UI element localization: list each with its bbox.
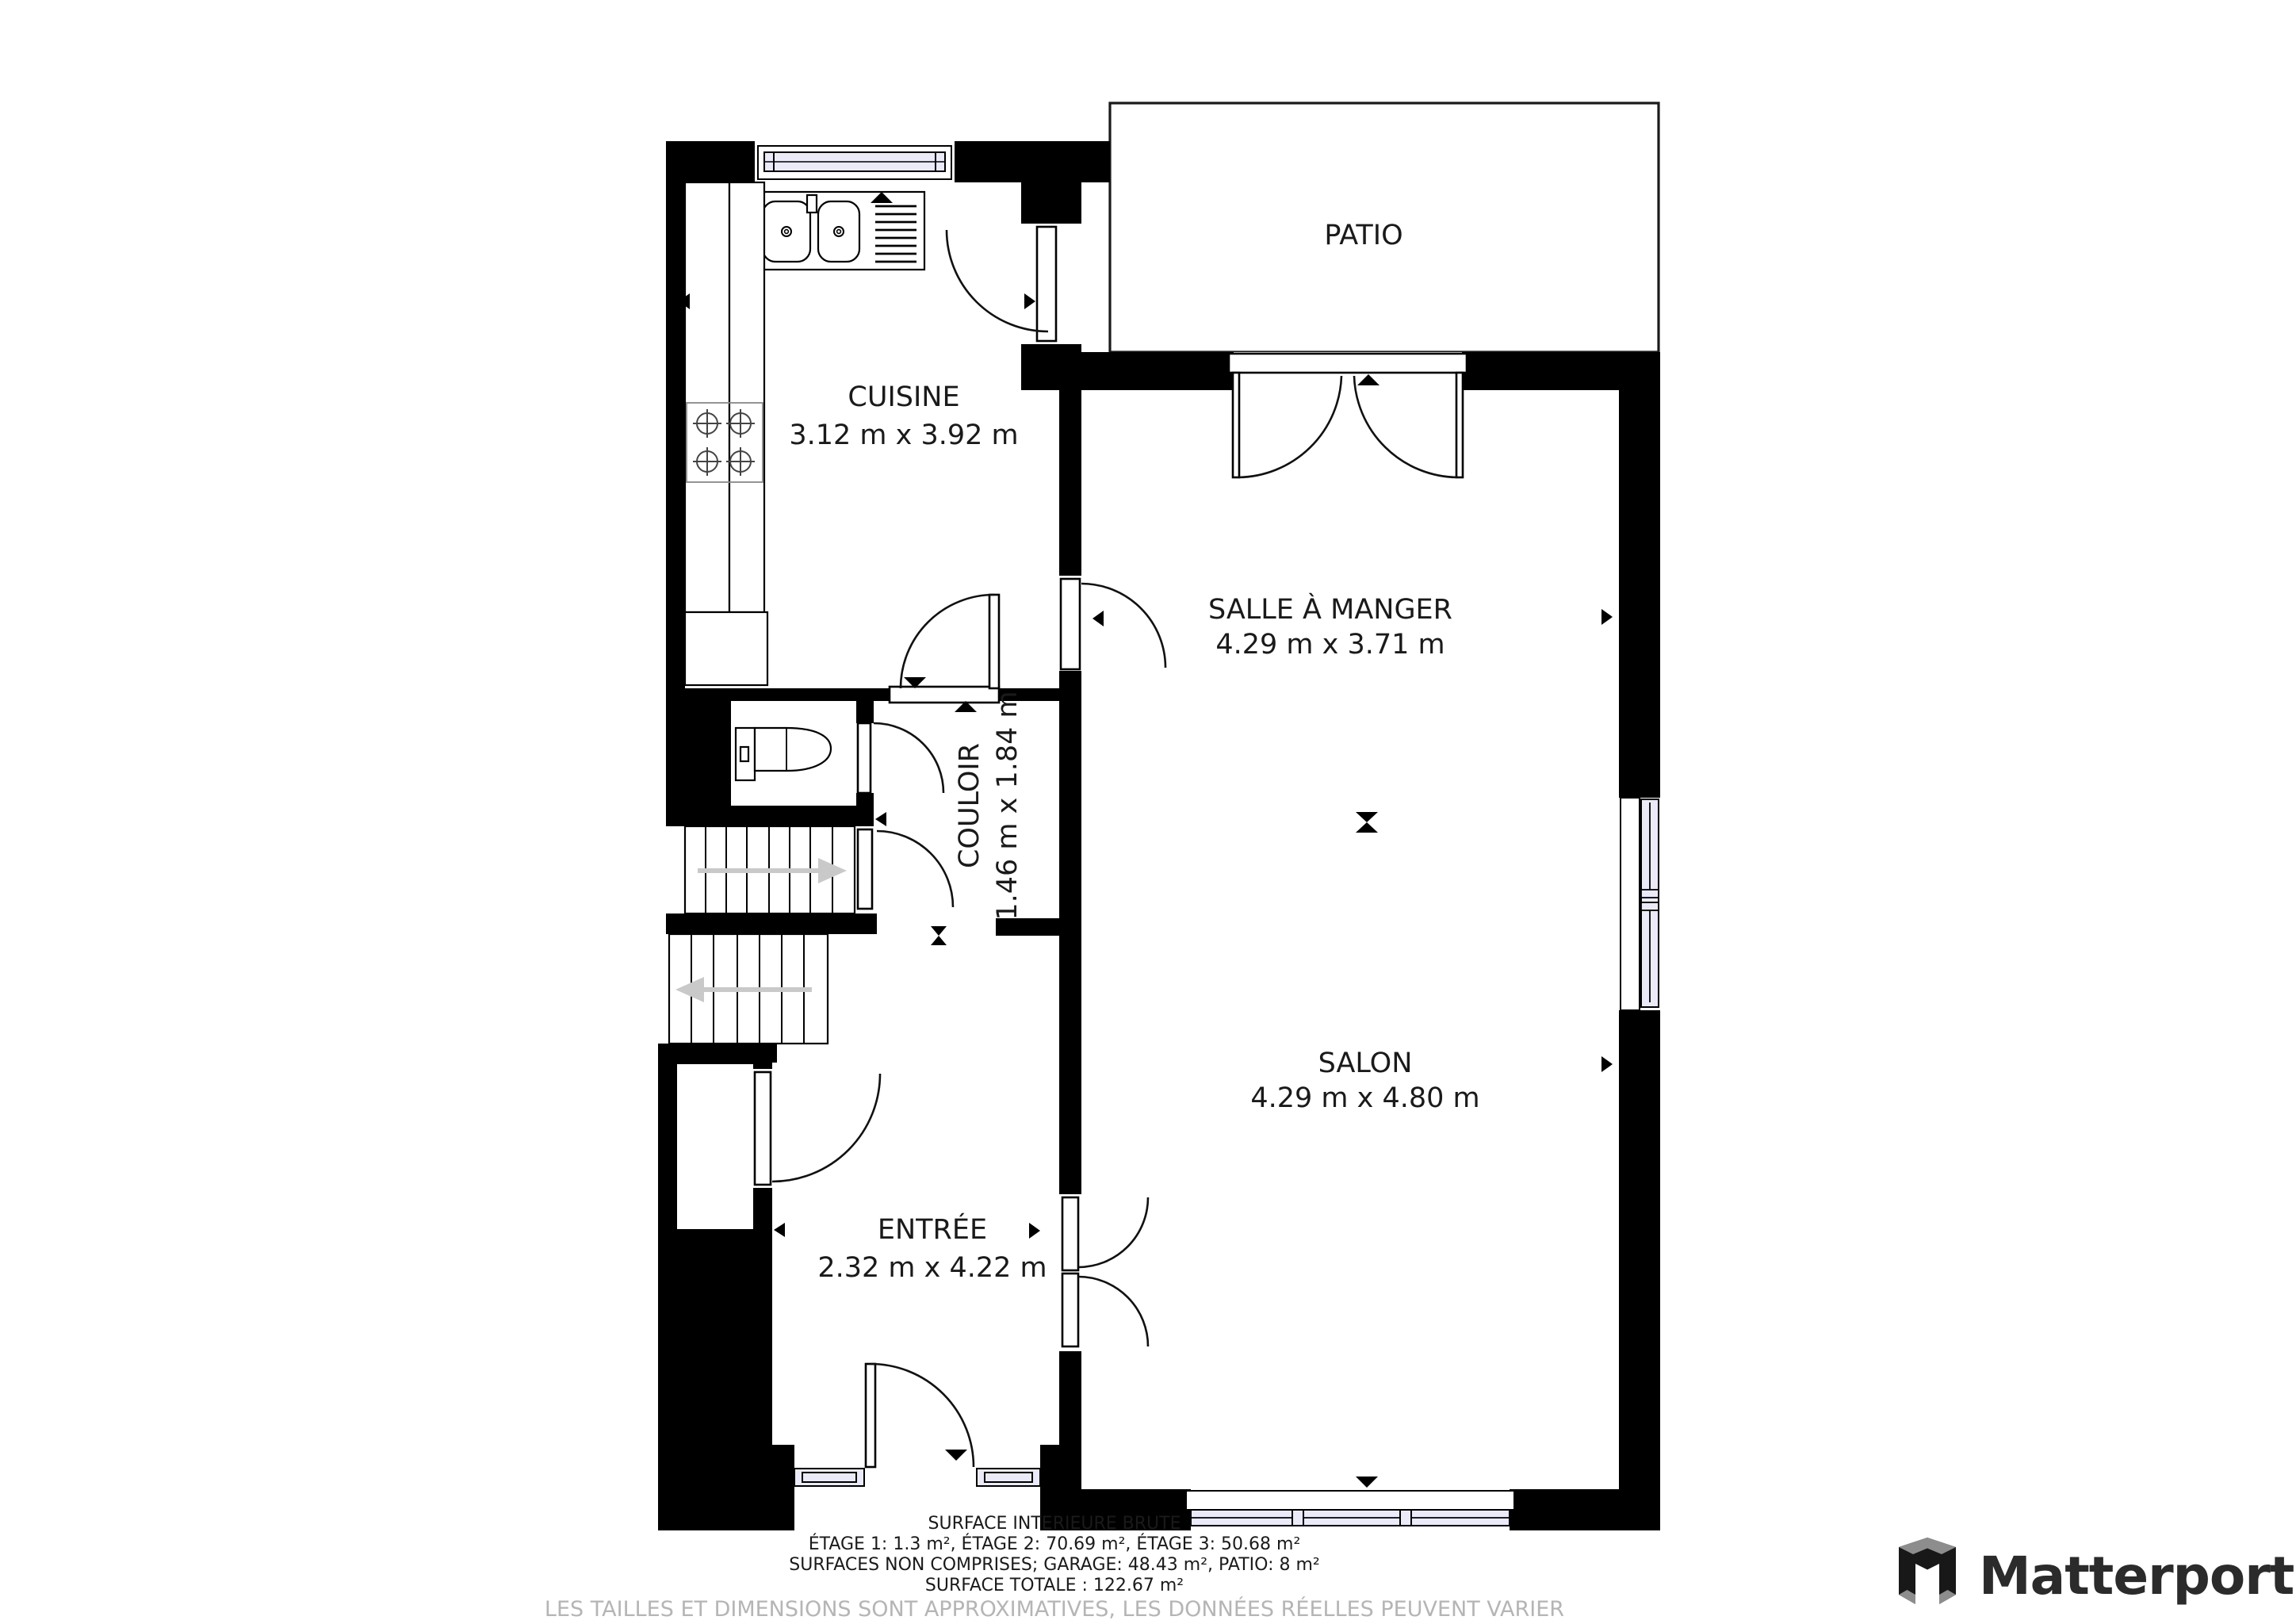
room-name: SALLE À MANGER (1208, 592, 1452, 626)
matterport-icon (1899, 1538, 1956, 1604)
room-name: ENTRÉE (878, 1212, 987, 1246)
room-label-entree: ENTRÉE 2.32 m x 4.22 m (817, 1212, 1047, 1284)
floor-plan-canvas: PATIO (0, 0, 2296, 1624)
room-dims: 4.29 m x 4.80 m (1250, 1082, 1479, 1114)
footer-disclaimer: LES TAILLES ET DIMENSIONS SONT APPROXIMA… (545, 1596, 1564, 1622)
room-name: COULOIR (954, 743, 985, 868)
room-dims: 4.29 m x 3.71 m (1215, 629, 1445, 661)
stairs-down-icon (669, 934, 828, 1044)
kitchen-counter (685, 182, 767, 685)
matterport-wordmark: Matterport (1979, 1545, 2294, 1607)
footer-title: SURFACE INTERIEURE BRUTE (928, 1514, 1181, 1534)
patio-french-doors-icon (1229, 354, 1467, 477)
room-dims: 2.32 m x 4.22 m (817, 1252, 1047, 1284)
entry-closet-door-icon (755, 1072, 880, 1185)
kitchen-window-icon (758, 146, 951, 179)
matterport-logo: Matterport (1899, 1538, 2294, 1607)
salon-side-window-icon (1621, 798, 1659, 1010)
room-dims: 3.12 m x 3.92 m (789, 419, 1018, 451)
patio-area: PATIO (1110, 103, 1659, 352)
room-label-salon: SALON 4.29 m x 4.80 m (1250, 1048, 1479, 1114)
kitchen-door-icon (947, 227, 1056, 341)
room-name: CUISINE (848, 381, 959, 413)
room-label-salle-a-manger: SALLE À MANGER 4.29 m x 3.71 m (1208, 592, 1452, 661)
footer-totale: SURFACE TOTALE : 122.67 m² (925, 1576, 1184, 1595)
room-dims: 1.46 m x 1.84 m (992, 691, 1024, 920)
dining-door-icon (1061, 579, 1165, 669)
room-label-couloir: COULOIR 1.46 m x 1.84 m (954, 691, 1024, 920)
couloir-kitchen-door-icon (890, 595, 999, 703)
stair-door-icon (858, 829, 953, 909)
kitchen-sink-icon (755, 192, 924, 270)
stairs-up-icon (685, 826, 855, 913)
wc-door-icon (858, 723, 943, 793)
floor-plan-page: PATIO (0, 0, 2296, 1624)
room-label-cuisine: CUISINE 3.12 m x 3.92 m (789, 381, 1018, 451)
footer-etages: ÉTAGE 1: 1.3 m², ÉTAGE 2: 70.69 m², ÉTAG… (809, 1534, 1301, 1554)
patio-label: PATIO (1324, 220, 1402, 251)
footer-non-comprises: SURFACES NON COMPRISES; GARAGE: 48.43 m²… (789, 1555, 1319, 1575)
room-name: SALON (1318, 1048, 1413, 1079)
salon-bottom-window-icon (1186, 1491, 1514, 1526)
